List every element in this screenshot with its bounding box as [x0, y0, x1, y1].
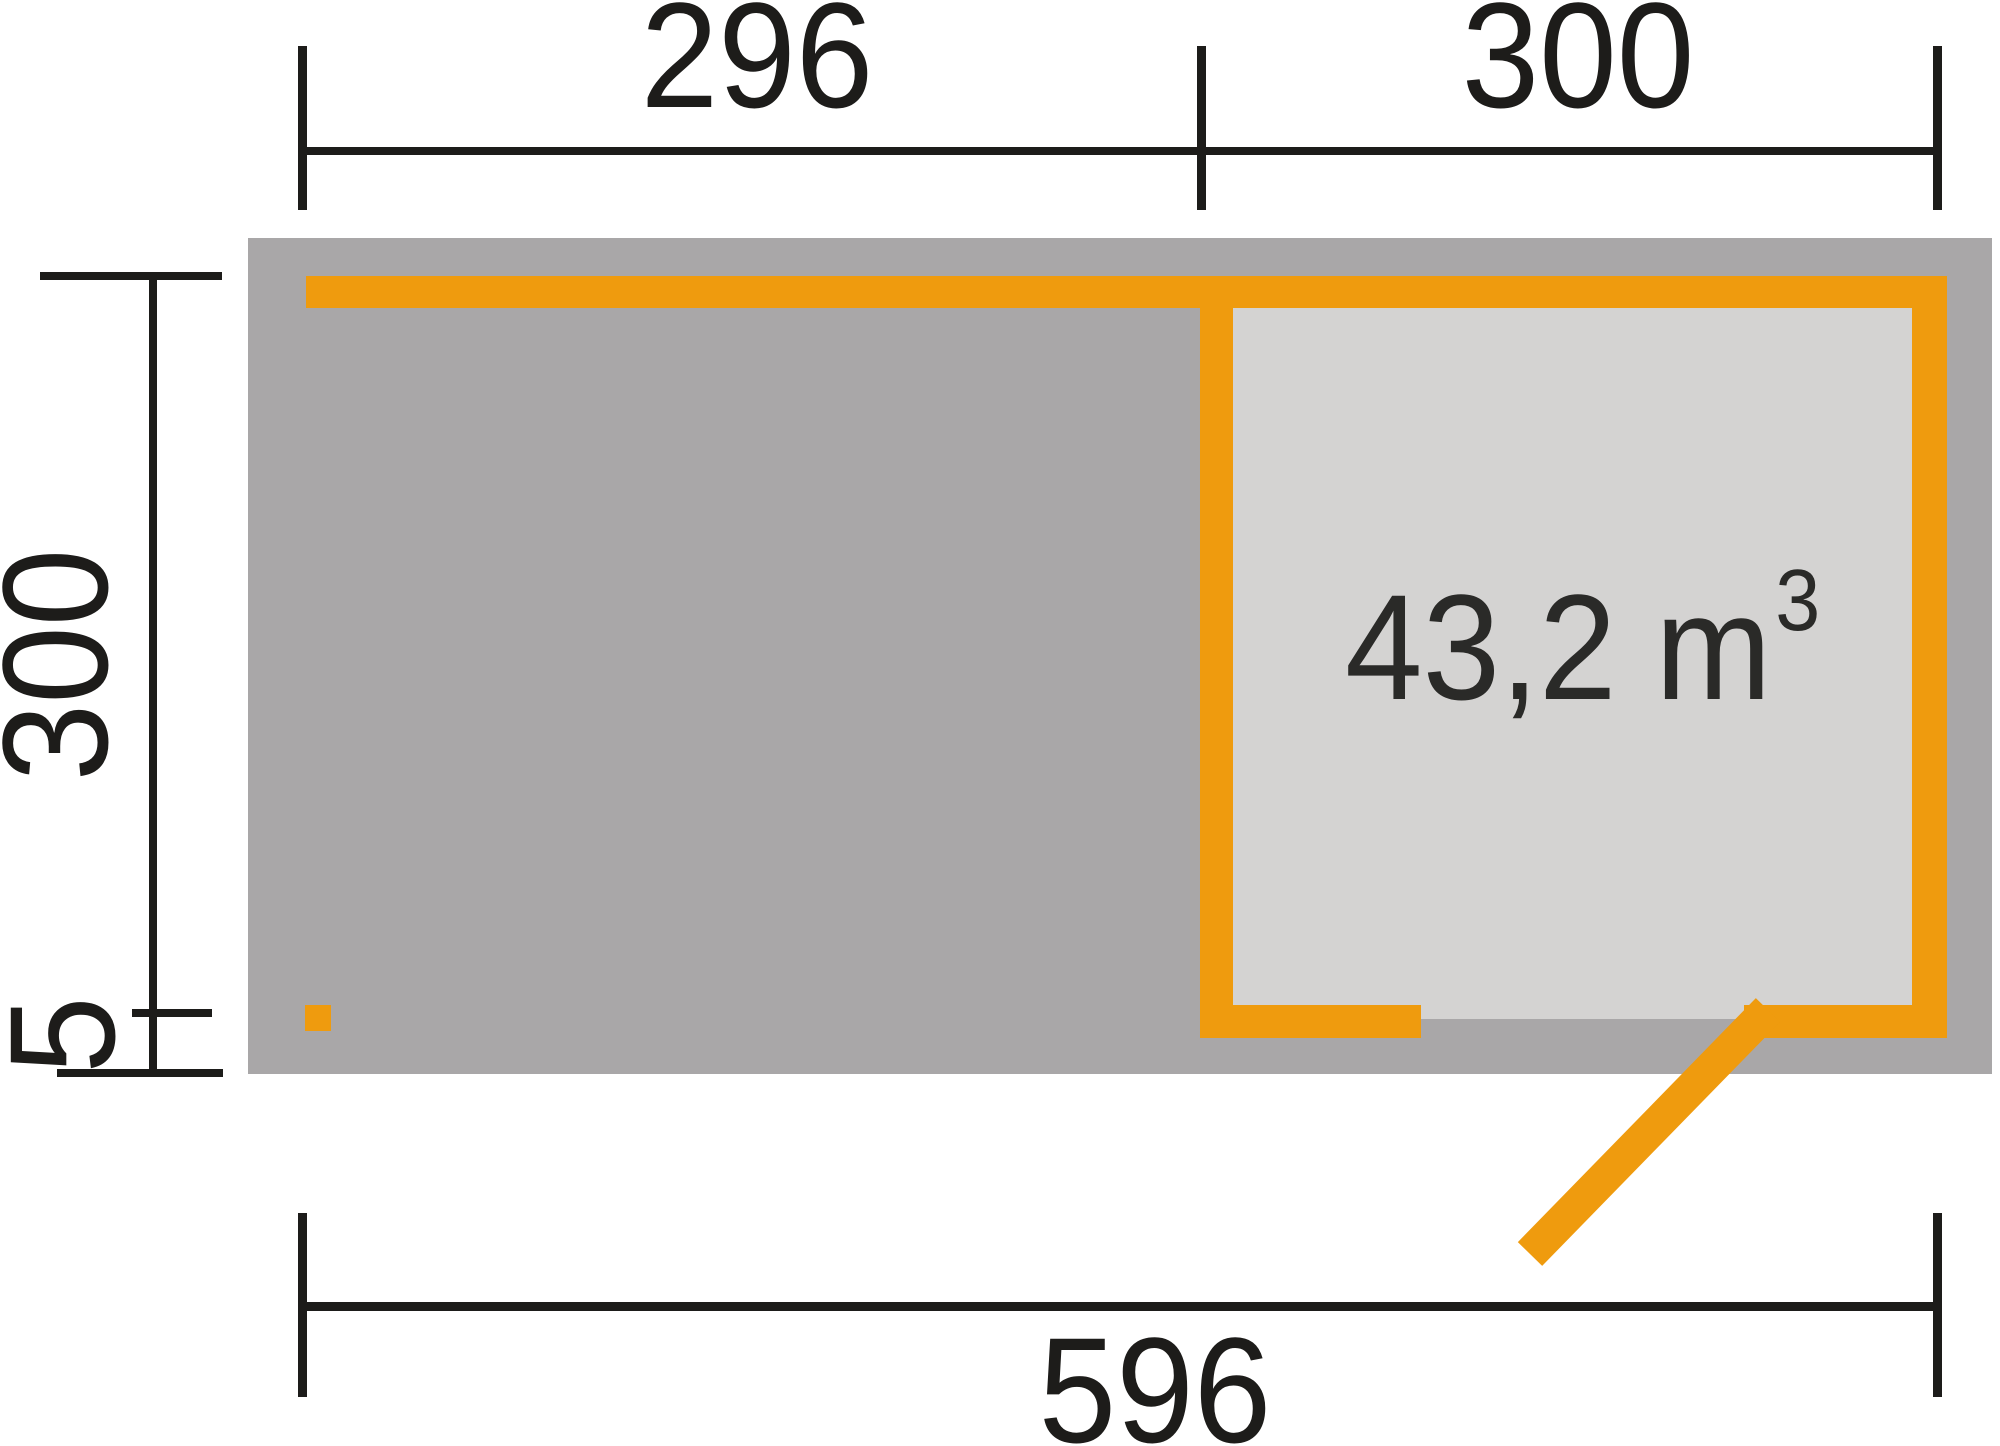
- terrace-post: [305, 1005, 331, 1031]
- room-volume-value: 43,2 m: [1345, 563, 1771, 731]
- dim-label-596: 596: [1039, 1315, 1272, 1446]
- room-right-wall: [1912, 308, 1947, 1038]
- dim-label-296: 296: [641, 0, 874, 130]
- dim-label-5-left: 5: [0, 996, 137, 1074]
- dim-tick-left-top: [40, 272, 222, 280]
- front-wall-line: [306, 276, 1947, 308]
- dim-line-top: [302, 147, 1937, 155]
- dim-label-300-top: 300: [1462, 0, 1695, 130]
- door-opening-floor: [1421, 1006, 1744, 1019]
- dim-tick-top-left: [298, 46, 307, 210]
- room-volume-exponent: 3: [1775, 552, 1820, 649]
- dim-tick-bottom-right: [1933, 1213, 1942, 1397]
- dim-tick-bottom-left: [298, 1213, 307, 1397]
- floor-plan-canvas: 296 300 300 5 596 43,2 m3: [0, 0, 2000, 1446]
- dim-line-left: [149, 272, 157, 1077]
- room-volume-label: 43,2 m3: [1345, 572, 1816, 722]
- room-left-wall: [1200, 308, 1233, 1038]
- room-bottom-wall-right-segment: [1744, 1005, 1947, 1038]
- dim-tick-top-right: [1933, 46, 1942, 210]
- room-bottom-wall-left-segment: [1200, 1005, 1421, 1038]
- dim-label-300-left: 300: [0, 549, 130, 782]
- dim-tick-top-middle: [1197, 46, 1206, 210]
